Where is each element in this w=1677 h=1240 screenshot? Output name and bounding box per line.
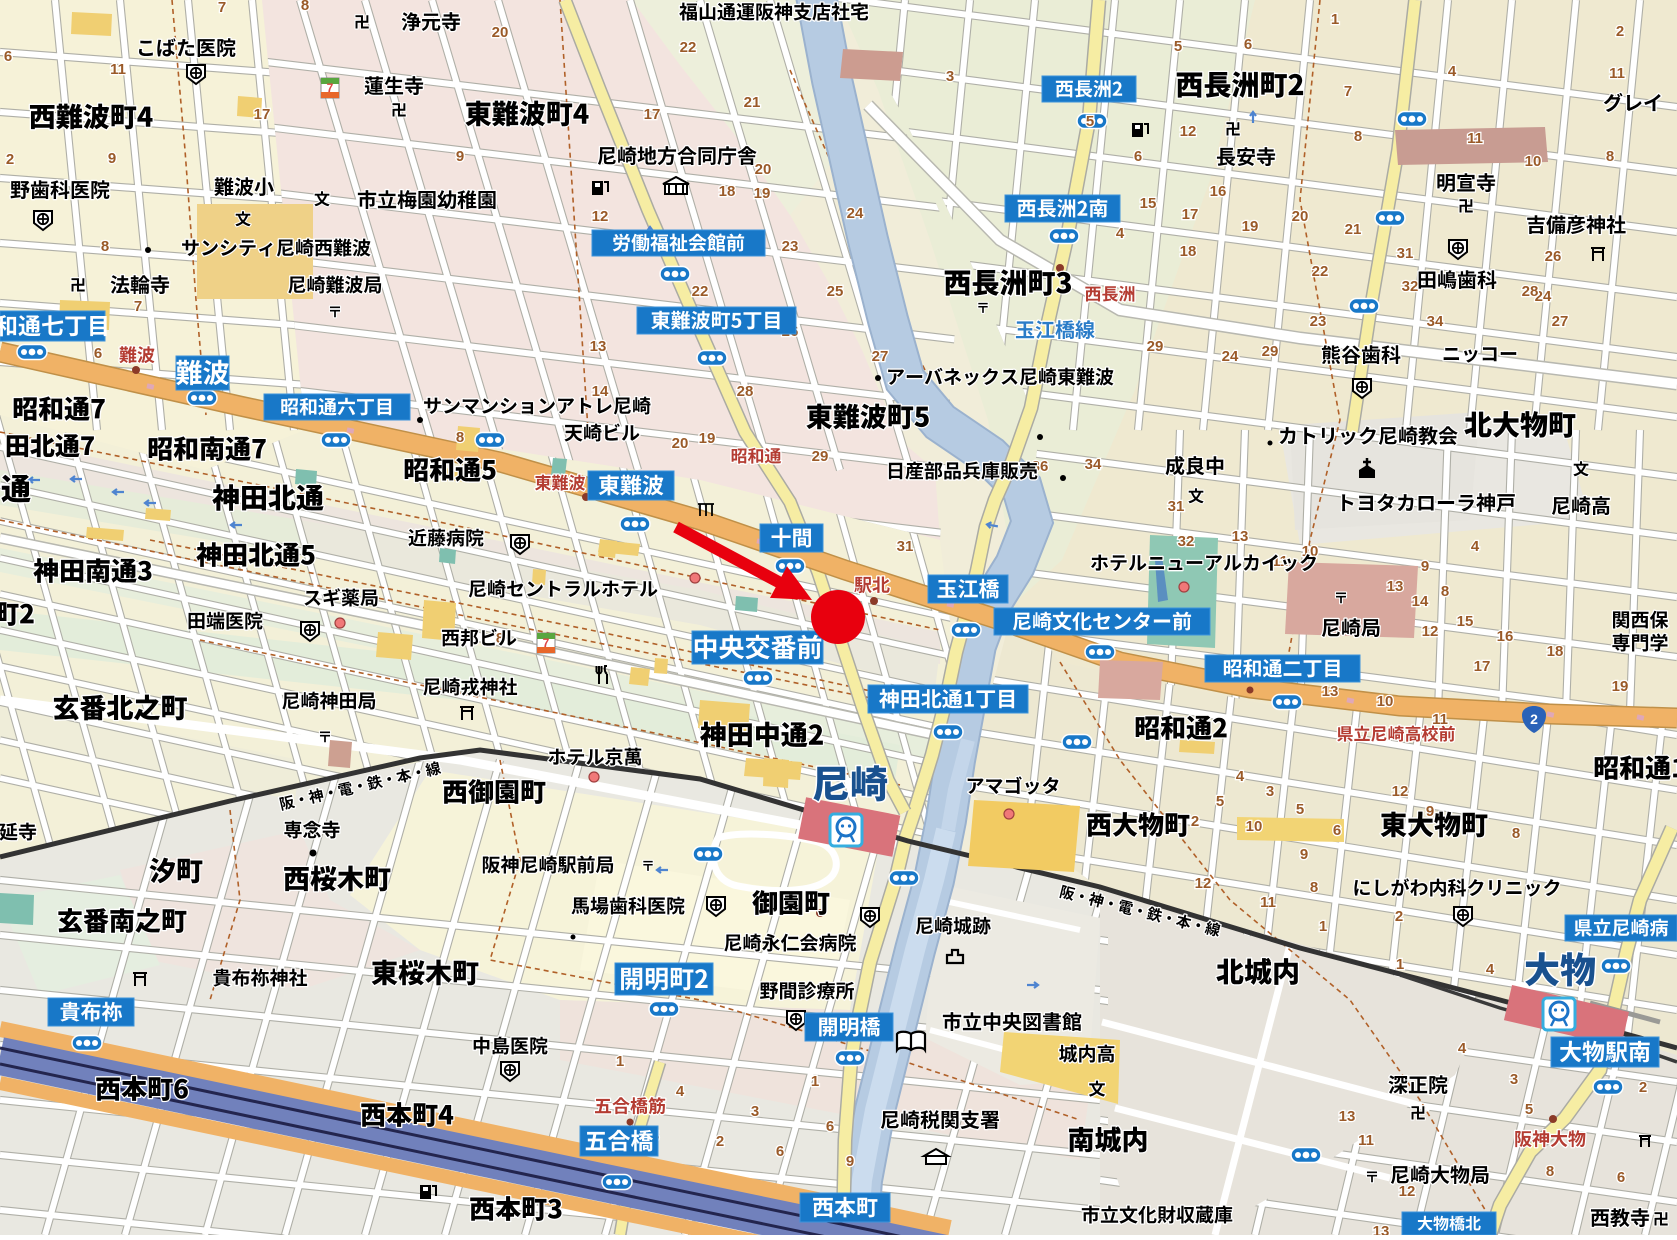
svg-text:15: 15 <box>1457 613 1474 630</box>
svg-text:17: 17 <box>1182 206 1199 223</box>
svg-text:6: 6 <box>1244 36 1252 53</box>
svg-text:9: 9 <box>1421 558 1429 575</box>
svg-text:28: 28 <box>737 383 754 400</box>
svg-text:6: 6 <box>1134 148 1142 165</box>
svg-text:23: 23 <box>782 238 799 255</box>
svg-text:29: 29 <box>1147 338 1164 355</box>
svg-text:21: 21 <box>744 94 761 111</box>
svg-text:17: 17 <box>1474 658 1491 675</box>
svg-text:1: 1 <box>1396 956 1404 973</box>
svg-text:28: 28 <box>1522 283 1539 300</box>
svg-text:6: 6 <box>776 1143 784 1160</box>
svg-text:23: 23 <box>1310 313 1327 330</box>
svg-text:12: 12 <box>1195 875 1212 892</box>
svg-text:8: 8 <box>1354 128 1362 145</box>
svg-text:11: 11 <box>1467 130 1483 147</box>
svg-text:16: 16 <box>1210 183 1227 200</box>
svg-text:7: 7 <box>543 636 550 650</box>
svg-text:25: 25 <box>827 283 844 300</box>
svg-text:11: 11 <box>1358 1132 1374 1149</box>
svg-text:2: 2 <box>1530 711 1538 727</box>
svg-text:10: 10 <box>1377 693 1394 710</box>
svg-text:31: 31 <box>897 538 914 555</box>
svg-text:16: 16 <box>1497 628 1514 645</box>
svg-text:4: 4 <box>1236 768 1245 785</box>
svg-text:18: 18 <box>719 183 736 200</box>
svg-text:5: 5 <box>1086 113 1094 130</box>
svg-text:9: 9 <box>846 1153 854 1170</box>
svg-text:3: 3 <box>751 1103 759 1120</box>
svg-text:19: 19 <box>1242 218 1259 235</box>
svg-text:12: 12 <box>1392 783 1409 800</box>
svg-text:11: 11 <box>1260 894 1276 911</box>
svg-text:2: 2 <box>1395 908 1403 925</box>
svg-text:10: 10 <box>1525 153 1542 170</box>
svg-text:13: 13 <box>1387 578 1404 595</box>
svg-text:2: 2 <box>716 1133 724 1150</box>
svg-text:27: 27 <box>1552 313 1569 330</box>
svg-text:3: 3 <box>946 68 954 85</box>
svg-text:29: 29 <box>1262 343 1279 360</box>
svg-text:20: 20 <box>672 435 689 452</box>
svg-text:18: 18 <box>1547 643 1564 660</box>
svg-text:34: 34 <box>1085 456 1102 473</box>
svg-text:9: 9 <box>456 148 464 165</box>
svg-text:5: 5 <box>1174 38 1182 55</box>
svg-text:15: 15 <box>1140 195 1157 212</box>
svg-text:5: 5 <box>1525 1101 1533 1118</box>
svg-text:24: 24 <box>847 205 864 222</box>
svg-text:29: 29 <box>812 448 829 465</box>
svg-text:13: 13 <box>1373 1223 1390 1235</box>
svg-text:13: 13 <box>1339 1108 1356 1125</box>
svg-text:22: 22 <box>692 283 709 300</box>
svg-text:12: 12 <box>1180 123 1197 140</box>
svg-text:2: 2 <box>1191 813 1199 830</box>
svg-text:22: 22 <box>680 39 697 56</box>
svg-text:8: 8 <box>1310 879 1318 896</box>
svg-text:6: 6 <box>826 1118 834 1135</box>
svg-text:13: 13 <box>1232 528 1249 545</box>
svg-text:17: 17 <box>644 106 661 123</box>
svg-text:11: 11 <box>1609 65 1625 82</box>
svg-text:8: 8 <box>1606 148 1614 165</box>
svg-text:3: 3 <box>1510 1071 1518 1088</box>
svg-text:32: 32 <box>1178 533 1195 550</box>
svg-text:31: 31 <box>1168 498 1185 515</box>
svg-text:6: 6 <box>1617 1169 1625 1186</box>
svg-text:10: 10 <box>1246 818 1263 835</box>
svg-text:1: 1 <box>1331 11 1339 28</box>
svg-text:12: 12 <box>1399 1183 1416 1200</box>
svg-text:34: 34 <box>1427 313 1444 330</box>
svg-text:8: 8 <box>1512 825 1520 842</box>
svg-text:19: 19 <box>1612 678 1629 695</box>
svg-text:3: 3 <box>1266 783 1274 800</box>
svg-text:27: 27 <box>872 348 889 365</box>
svg-text:4: 4 <box>676 1083 685 1100</box>
svg-text:5: 5 <box>1296 801 1304 818</box>
svg-text:2: 2 <box>6 151 14 168</box>
svg-text:31: 31 <box>1397 245 1414 262</box>
svg-text:18: 18 <box>1180 243 1197 260</box>
svg-text:7: 7 <box>218 0 226 16</box>
svg-text:7: 7 <box>1344 83 1352 100</box>
svg-text:5: 5 <box>1216 793 1224 810</box>
svg-text:13: 13 <box>1322 683 1339 700</box>
svg-text:20: 20 <box>1292 208 1309 225</box>
svg-text:6: 6 <box>94 345 102 362</box>
svg-text:7: 7 <box>134 298 142 315</box>
svg-text:8: 8 <box>301 0 309 14</box>
svg-text:1: 1 <box>811 1073 819 1090</box>
svg-text:26: 26 <box>1545 248 1562 265</box>
svg-text:6: 6 <box>4 48 12 65</box>
svg-text:14: 14 <box>1412 593 1429 610</box>
svg-text:17: 17 <box>254 106 271 123</box>
svg-text:13: 13 <box>590 338 607 355</box>
svg-text:4: 4 <box>1486 961 1495 978</box>
svg-text:4: 4 <box>1448 63 1457 80</box>
svg-text:8: 8 <box>456 429 464 446</box>
svg-text:1: 1 <box>1319 918 1327 935</box>
svg-text:8: 8 <box>101 238 109 255</box>
svg-text:24: 24 <box>1222 348 1239 365</box>
svg-text:2: 2 <box>1639 1079 1647 1096</box>
svg-text:8: 8 <box>1546 1163 1554 1180</box>
svg-text:32: 32 <box>1402 278 1419 295</box>
svg-text:20: 20 <box>492 24 509 41</box>
svg-text:22: 22 <box>1312 263 1329 280</box>
svg-text:9: 9 <box>108 150 116 167</box>
svg-text:6: 6 <box>1333 822 1341 839</box>
svg-text:7: 7 <box>327 81 334 95</box>
svg-text:20: 20 <box>755 161 772 178</box>
svg-text:21: 21 <box>1345 221 1362 238</box>
svg-text:12: 12 <box>1422 623 1439 640</box>
svg-text:4: 4 <box>1116 225 1125 242</box>
svg-text:11: 11 <box>110 61 126 78</box>
svg-text:12: 12 <box>592 208 609 225</box>
svg-text:19: 19 <box>699 430 716 447</box>
svg-text:9: 9 <box>1300 846 1308 863</box>
svg-text:2: 2 <box>1616 23 1624 40</box>
svg-text:4: 4 <box>1458 1040 1467 1057</box>
svg-text:19: 19 <box>754 185 771 202</box>
svg-text:4: 4 <box>1471 538 1480 555</box>
svg-text:1: 1 <box>616 1053 624 1070</box>
svg-text:8: 8 <box>1441 583 1449 600</box>
